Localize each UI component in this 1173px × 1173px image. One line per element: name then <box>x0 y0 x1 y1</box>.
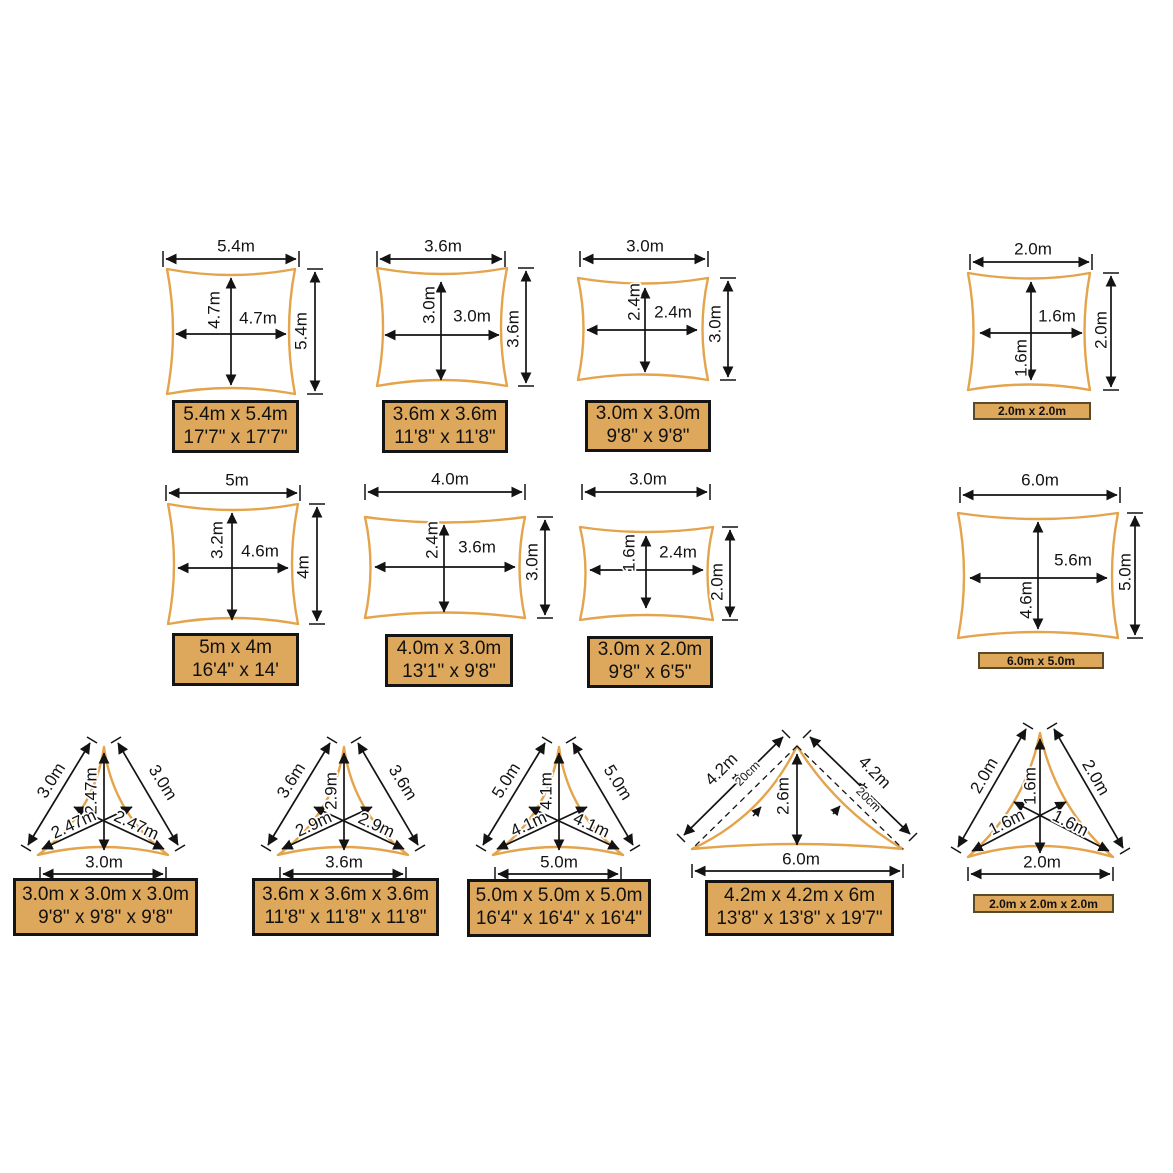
size-imperial: 13'8" x 13'8" x 19'7" <box>708 908 891 931</box>
square-diagram-3-0: 3.0m 3.0m 2.4m 2.4m <box>565 236 750 404</box>
size-label-box: 3.6m x 3.6m x 3.6m 11'8" x 11'8" x 11'8" <box>252 878 439 936</box>
inner-height-label: 1.6m <box>619 534 638 572</box>
size-label-box: 5m x 4m 16'4" x 14' <box>172 633 299 686</box>
size-imperial: 11'8" x 11'8" <box>385 427 505 450</box>
sail-shape <box>377 268 507 386</box>
size-metric: 3.0m x 3.0m x 3.0m <box>16 884 195 907</box>
right-side-label: 2.0m <box>1078 756 1113 798</box>
side-dimension-label: 4m <box>293 555 312 579</box>
rect-diagram-4x3: 4.0m 3.0m 2.4m 3.6m <box>355 470 560 644</box>
size-metric: 4.0m x 3.0m <box>388 638 510 661</box>
size-metric: 3.0m x 2.0m <box>590 639 710 662</box>
shade-sail-size-chart: 5.4m 5.4m 4.7m 4.7m 5.4m x 5.4m 17'7" x … <box>0 0 1173 1173</box>
top-dimension-label: 3.0m <box>629 469 667 488</box>
inner-width-label: 3.0m <box>453 306 491 325</box>
side-dimension-label: 2.0m <box>1091 311 1110 349</box>
sail-shape <box>168 504 298 624</box>
inner-height-label: 3.2m <box>207 521 226 559</box>
inner-height-label: 4.7m <box>204 291 223 329</box>
size-label-box: 3.0m x 3.0m 9'8" x 9'8" <box>585 400 711 452</box>
inner-height-label: 1.6m <box>1011 339 1030 377</box>
top-dimension-label: 5.4m <box>217 236 255 255</box>
side-dimension-label: 3.6m <box>503 310 522 348</box>
inner-height-label: 1.6m <box>1020 767 1039 805</box>
inner-width-label: 4.6m <box>241 541 279 560</box>
triangle-diagram-2-0: 2.0m 2.0m 2.0m 1.6m 1.6m 1.6m <box>935 713 1170 888</box>
size-label-box: 3.6m x 3.6m 11'8" x 11'8" <box>382 400 508 453</box>
size-label-box: 5.0m x 5.0m x 5.0m 16'4" x 16'4" x 16'4" <box>467 879 651 937</box>
inner-width-label: 1.6m <box>1038 306 1076 325</box>
side-dimension-label: 5.0m <box>1115 553 1134 591</box>
size-metric: 3.6m x 3.6m x 3.6m <box>255 884 436 907</box>
inner-height-label: 2.9m <box>321 772 340 810</box>
rect-diagram-5x4: 5m 4m 3.2m 4.6m <box>150 470 345 644</box>
left-side-label: 5.0m <box>488 759 524 801</box>
triangle-diagram-4-2x4-2x6: 4.2m 4.2m 20cm 20cm 2.6m 6.0m <box>675 712 930 887</box>
size-label-box: 3.0m x 2.0m 9'8" x 6'5" <box>587 636 713 688</box>
bottom-side-label: 2.0m <box>1023 852 1061 871</box>
size-imperial: 9'8" x 9'8" x 9'8" <box>16 907 195 930</box>
square-diagram-2-0: 2.0m 2.0m 1.6m 1.6m <box>950 238 1140 400</box>
bottom-side-label: 5.0m <box>540 852 578 871</box>
bottom-side-label: 3.6m <box>325 852 363 871</box>
size-metric: 2.0m x 2.0m <box>998 404 1066 418</box>
triangle-diagram-3-6: 3.6m 3.6m 3.6m 2.9m 2.9m 2.9m <box>240 715 475 887</box>
top-dimension-label: 3.6m <box>424 236 462 255</box>
size-imperial: 13'1" x 9'8" <box>388 661 510 684</box>
left-side-label: 3.6m <box>273 759 309 801</box>
side-dimension-label: 2.0m <box>707 563 726 601</box>
size-metric: 2.0m x 2.0m x 2.0m <box>989 897 1098 911</box>
inner-width-label: 2.4m <box>654 302 692 321</box>
size-label-box: 3.0m x 3.0m x 3.0m 9'8" x 9'8" x 9'8" <box>13 878 198 936</box>
size-metric: 6.0m x 5.0m <box>1007 654 1075 668</box>
size-metric: 3.6m x 3.6m <box>385 404 505 427</box>
bottom-side-label: 3.0m <box>85 852 123 871</box>
size-label-box: 6.0m x 5.0m <box>978 652 1104 669</box>
size-label-box: 2.0m x 2.0m <box>973 402 1091 420</box>
size-label-box: 4.2m x 4.2m x 6m 13'8" x 13'8" x 19'7" <box>705 880 894 936</box>
top-dimension-label: 6.0m <box>1021 470 1059 489</box>
side-dimension-label: 3.0m <box>522 543 541 581</box>
rect-diagram-3x2: 3.0m 2.0m 1.6m 2.4m <box>560 470 750 644</box>
inner-height-label: 2.6m <box>773 777 792 815</box>
size-metric: 3.0m x 3.0m <box>588 403 708 426</box>
size-imperial: 9'8" x 9'8" <box>588 426 708 449</box>
inner-height-label: 2.4m <box>624 283 643 321</box>
size-imperial: 16'4" x 14' <box>175 660 296 683</box>
top-dimension-label: 3.0m <box>626 236 664 255</box>
bottom-side-label: 6.0m <box>782 849 820 868</box>
triangle-diagram-5-0: 5.0m 5.0m 5.0m 4.1m 4.1m 4.1m <box>455 715 690 887</box>
inner-width-label: 5.6m <box>1054 550 1092 569</box>
inner-height-label: 4.6m <box>1016 581 1035 619</box>
size-label-box: 5.4m x 5.4m 17'7" x 17'7" <box>172 400 299 453</box>
size-imperial: 11'8" x 11'8" x 11'8" <box>255 907 436 930</box>
size-label-box: 4.0m x 3.0m 13'1" x 9'8" <box>385 634 513 687</box>
left-side-label: 3.0m <box>33 759 69 801</box>
inner-height-label: 2.4m <box>422 521 441 559</box>
triangle-diagram-3-0: 3.0m 3.0m 3.0m 2.47m 2.47m 2.47m <box>0 715 235 887</box>
inner-height-label: 4.1m <box>536 772 555 810</box>
inner-width-label: 4.7m <box>239 308 277 327</box>
rect-diagram-6x5: 6.0m 5.0m 5.6m 4.6m <box>945 470 1150 648</box>
inner-width-label: 3.6m <box>458 537 496 556</box>
size-metric: 5.0m x 5.0m x 5.0m <box>470 885 648 908</box>
top-dimension-label: 5m <box>225 470 249 489</box>
top-dimension-label: 4.0m <box>431 469 469 488</box>
size-metric: 4.2m x 4.2m x 6m <box>708 885 891 908</box>
size-metric: 5m x 4m <box>175 637 296 660</box>
square-diagram-5-4: 5.4m 5.4m 4.7m 4.7m <box>150 236 340 404</box>
size-label-box: 2.0m x 2.0m x 2.0m <box>973 894 1114 913</box>
side-dimension-label: 3.0m <box>705 305 724 343</box>
inner-width-label: 2.4m <box>659 542 697 561</box>
side-dimension-label: 5.4m <box>291 312 310 350</box>
square-diagram-3-6: 3.6m 3.6m 3.0m 3.0m <box>360 236 545 404</box>
inner-height-label: 3.0m <box>419 286 438 324</box>
size-imperial: 16'4" x 16'4" x 16'4" <box>470 908 648 931</box>
size-imperial: 9'8" x 6'5" <box>590 662 710 685</box>
size-metric: 5.4m x 5.4m <box>175 404 296 427</box>
top-dimension-label: 2.0m <box>1014 239 1052 258</box>
size-imperial: 17'7" x 17'7" <box>175 427 296 450</box>
left-side-label: 2.0m <box>966 754 1001 796</box>
